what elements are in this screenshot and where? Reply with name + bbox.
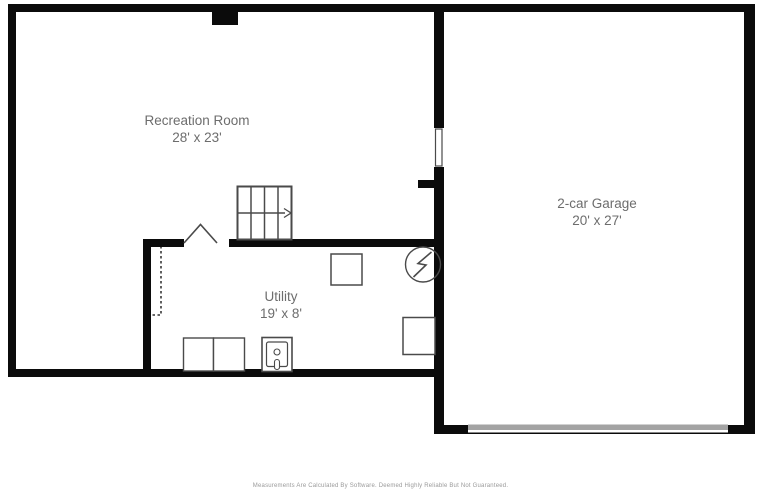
- dryer-icon: [214, 338, 245, 371]
- room-label-recreation: Recreation Room 28' x 23': [144, 112, 249, 146]
- fixture-square-icon: [403, 318, 435, 355]
- room-name: 2-car Garage: [557, 195, 637, 212]
- utility-sink-icon: [262, 338, 292, 372]
- garage-door-icon: [468, 422, 728, 433]
- electrical-panel-icon: [406, 247, 441, 282]
- washer-icon: [184, 338, 214, 371]
- room-name: Recreation Room: [144, 112, 249, 129]
- sink-faucet: [275, 360, 280, 370]
- window-icon: [433, 128, 445, 167]
- room-dimensions: 28' x 23': [144, 129, 249, 146]
- water-heater-icon: [331, 254, 362, 285]
- disclaimer-text: Measurements Are Calculated By Software.…: [0, 483, 761, 489]
- room-dimensions: 19' x 8': [260, 305, 302, 322]
- room-name: Utility: [260, 288, 302, 305]
- stairs-icon: [238, 187, 292, 240]
- door-opening-icon: [184, 225, 217, 244]
- sink-drain: [274, 349, 280, 355]
- dashed-outline-icon: [148, 246, 161, 315]
- plan-symbols: [0, 0, 761, 494]
- floor-plan: Recreation Room 28' x 23' 2-car Garage 2…: [0, 0, 761, 494]
- room-label-utility: Utility 19' x 8': [260, 288, 302, 322]
- room-dimensions: 20' x 27': [557, 212, 637, 229]
- room-label-garage: 2-car Garage 20' x 27': [557, 195, 637, 229]
